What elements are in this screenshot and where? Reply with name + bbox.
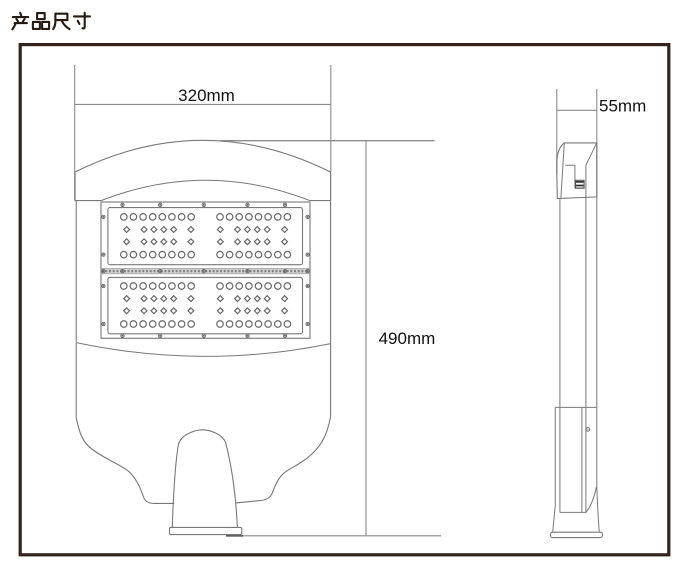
svg-text:320mm: 320mm	[178, 86, 235, 105]
svg-text:490mm: 490mm	[379, 329, 436, 348]
svg-text:55mm: 55mm	[599, 97, 646, 116]
